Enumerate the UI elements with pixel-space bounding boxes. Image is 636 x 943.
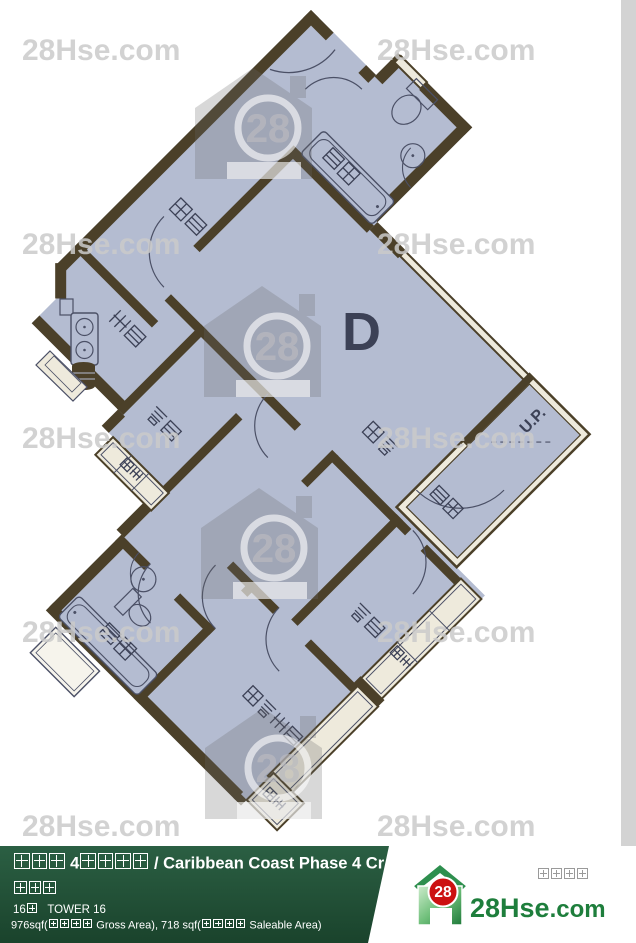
svg-text:28Hse.com: 28Hse.com (22, 228, 180, 261)
svg-text:28: 28 (256, 747, 301, 791)
svg-text:28: 28 (434, 884, 452, 901)
svg-text:28Hse.com: 28Hse.com (470, 893, 606, 923)
svg-text:28Hse.com: 28Hse.com (377, 810, 535, 843)
svg-text:28Hse.com: 28Hse.com (377, 422, 535, 455)
svg-text:28Hse.com: 28Hse.com (377, 228, 535, 261)
svg-text:28Hse.com: 28Hse.com (22, 616, 180, 649)
svg-text:28: 28 (246, 107, 291, 151)
svg-text:28Hse.com: 28Hse.com (22, 422, 180, 455)
svg-text:28Hse.com: 28Hse.com (22, 34, 180, 67)
svg-text:28Hse.com: 28Hse.com (377, 616, 535, 649)
svg-text:D: D (342, 302, 381, 362)
svg-text:28Hse.com: 28Hse.com (377, 34, 535, 67)
svg-text:28: 28 (252, 527, 297, 571)
svg-text:28Hse.com: 28Hse.com (22, 810, 180, 843)
svg-text:28: 28 (255, 325, 300, 369)
